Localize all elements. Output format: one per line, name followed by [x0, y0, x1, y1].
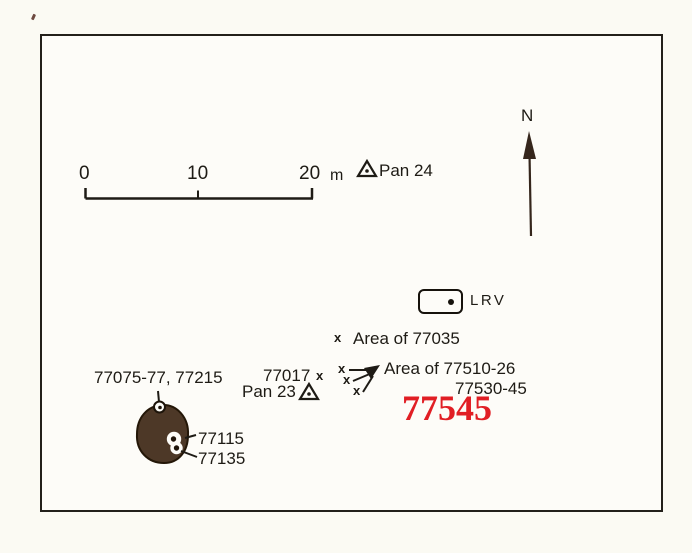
scale-unit-label: m — [330, 168, 343, 184]
highlight-77545-label: 77545 — [402, 390, 492, 426]
scale-label-20: 20 — [299, 164, 320, 183]
scale-label-0: 0 — [79, 164, 90, 183]
sample-77115-label: 77115 — [198, 430, 244, 447]
lrv-box-symbol — [418, 289, 463, 314]
scale-bar-icon — [80, 185, 325, 205]
north-arrow-icon — [518, 128, 544, 242]
area-77035-label: Area of 77035 — [353, 330, 460, 347]
boulder-group-label: 77075-77, 77215 — [94, 369, 223, 386]
lrv-dot-marker — [448, 299, 454, 305]
x-marker-77017: x — [316, 369, 323, 382]
station-map-figure: 0 10 20 m Pan 24 N LRV x Area of 77035 7… — [0, 0, 692, 553]
area-77510-label-line1: Area of 77510-26 — [384, 360, 515, 377]
cluster-arrow-icon — [335, 358, 387, 398]
pan23-triangle-icon — [299, 382, 319, 401]
sample-77135-label: 77135 — [198, 450, 245, 467]
pan24-triangle-icon — [357, 159, 377, 178]
north-label: N — [521, 107, 533, 124]
pan24-label: Pan 24 — [379, 162, 433, 179]
x-marker-77035: x — [334, 331, 341, 344]
scale-label-10: 10 — [187, 164, 208, 183]
lrv-label: LRV — [470, 293, 506, 308]
corner-pen-mark — [31, 14, 36, 21]
